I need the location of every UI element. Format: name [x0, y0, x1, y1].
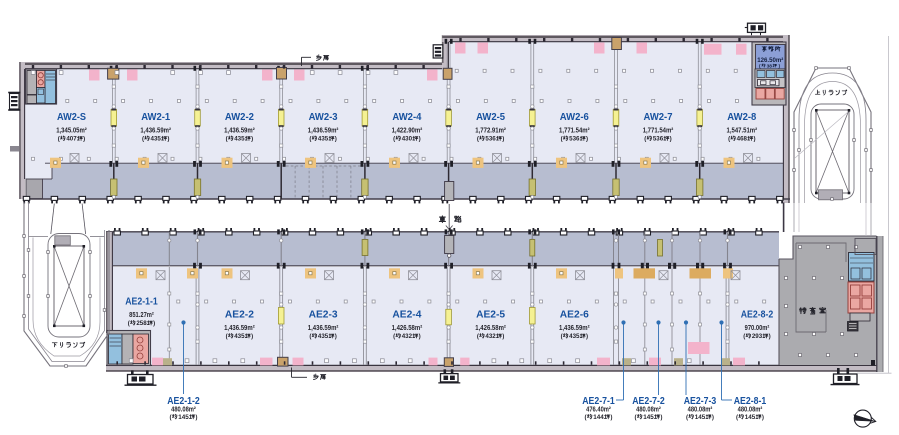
svg-text:536: 536: [485, 135, 496, 142]
svg-text:1,772.91m²: 1,772.91m²: [475, 128, 506, 135]
svg-text:): ): [712, 414, 714, 421]
svg-text:1,771.54m²: 1,771.54m²: [559, 128, 590, 135]
svg-text:435: 435: [318, 333, 329, 340]
svg-text:1,436.59m²: 1,436.59m²: [308, 128, 339, 135]
svg-text:480.08m²: 480.08m²: [688, 405, 713, 414]
svg-text:): ): [419, 135, 421, 142]
svg-text:1,436.59m²: 1,436.59m²: [224, 128, 255, 135]
svg-text:432: 432: [485, 333, 496, 340]
svg-text:536: 536: [653, 135, 664, 142]
svg-text:1,426.58m²: 1,426.58m²: [392, 325, 423, 332]
svg-text:1,436.59m²: 1,436.59m²: [559, 325, 590, 332]
svg-text:293: 293: [752, 333, 763, 340]
svg-text:AW2-6: AW2-6: [560, 112, 589, 123]
svg-text:145: 145: [695, 414, 706, 421]
svg-text:): ): [502, 333, 504, 340]
svg-text:970.00m²: 970.00m²: [745, 325, 770, 332]
svg-text:AE2-5: AE2-5: [476, 310, 505, 321]
svg-text:1,547.51m²: 1,547.51m²: [727, 128, 758, 135]
svg-text:430: 430: [402, 135, 413, 142]
svg-text:): ): [83, 135, 85, 142]
svg-text:AW2-5: AW2-5: [476, 112, 505, 123]
svg-text:126.50m²: 126.50m²: [757, 57, 783, 64]
svg-text:435: 435: [318, 135, 329, 142]
svg-text:480.08m²: 480.08m²: [738, 405, 763, 414]
svg-text:1,436.59m²: 1,436.59m²: [224, 325, 255, 332]
svg-text:): ): [769, 333, 771, 340]
svg-text:1,345.05m²: 1,345.05m²: [56, 128, 87, 135]
svg-text:AE2-2: AE2-2: [225, 310, 254, 321]
svg-text:): ): [586, 135, 588, 142]
svg-text:AW2-S: AW2-S: [57, 112, 86, 123]
svg-text:AE2-6: AE2-6: [560, 310, 589, 321]
svg-text:AW2-3: AW2-3: [309, 112, 338, 123]
svg-text:): ): [195, 414, 197, 421]
svg-text:435: 435: [569, 333, 580, 340]
svg-text:): ): [335, 333, 337, 340]
svg-text:432: 432: [402, 333, 413, 340]
svg-text:AE2-3: AE2-3: [309, 310, 338, 321]
svg-text:435: 435: [234, 333, 245, 340]
svg-text:): ): [167, 135, 169, 142]
svg-text:145: 145: [178, 414, 189, 421]
svg-text:): ): [753, 135, 755, 142]
svg-text:480.08m²: 480.08m²: [636, 405, 661, 414]
svg-text:): ): [670, 135, 672, 142]
svg-text:258: 258: [136, 320, 147, 327]
svg-text:851.27m²: 851.27m²: [129, 312, 154, 319]
svg-text:): ): [153, 320, 155, 327]
svg-text:145: 145: [643, 414, 654, 421]
svg-text:AE2-1-1: AE2-1-1: [125, 297, 158, 308]
svg-text:468: 468: [737, 135, 748, 142]
svg-text:1,422.90m²: 1,422.90m²: [392, 128, 423, 135]
svg-text:435: 435: [234, 135, 245, 142]
svg-text:536: 536: [569, 135, 580, 142]
svg-text:AE2-4: AE2-4: [392, 310, 421, 321]
svg-text:): ): [586, 333, 588, 340]
svg-text:): ): [660, 414, 662, 421]
svg-text:1,771.54m²: 1,771.54m²: [643, 128, 674, 135]
svg-text:1,436.59m²: 1,436.59m²: [308, 325, 339, 332]
svg-text:): ): [251, 135, 253, 142]
svg-text:435: 435: [151, 135, 162, 142]
svg-text:1,436.59m²: 1,436.59m²: [140, 128, 171, 135]
svg-text:): ): [251, 333, 253, 340]
svg-text:): ): [762, 414, 764, 421]
svg-text:476.40m²: 476.40m²: [586, 405, 611, 414]
svg-text:AW2-8: AW2-8: [727, 112, 756, 123]
svg-text:38: 38: [767, 63, 773, 69]
svg-text:AW2-1: AW2-1: [141, 112, 170, 123]
svg-text:AE2-8-2: AE2-8-2: [741, 310, 774, 321]
svg-text:407: 407: [66, 135, 77, 142]
svg-text:): ): [419, 333, 421, 340]
svg-text:AW2-7: AW2-7: [644, 112, 673, 123]
svg-text:144: 144: [593, 414, 604, 421]
svg-text:AW2-2: AW2-2: [225, 112, 254, 123]
svg-text:): ): [502, 135, 504, 142]
svg-text:): ): [335, 135, 337, 142]
svg-text:480.08m²: 480.08m²: [171, 405, 196, 414]
svg-text:): ): [610, 414, 612, 421]
svg-text:AW2-4: AW2-4: [392, 112, 421, 123]
svg-text:145: 145: [745, 414, 756, 421]
svg-text:1,426.58m²: 1,426.58m²: [475, 325, 506, 332]
